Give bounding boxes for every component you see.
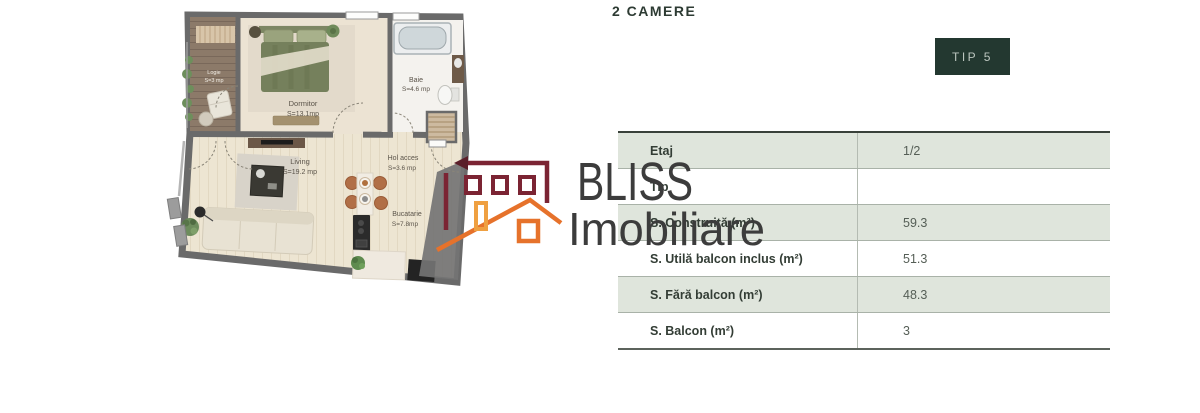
row-label: Tip xyxy=(618,169,858,204)
row-value xyxy=(858,169,1110,204)
table-row: S. Fără balcon (m²) 48.3 xyxy=(618,277,1110,313)
room-label-bucatarie: Bucatarie xyxy=(392,211,422,218)
table-row: Tip xyxy=(618,169,1110,205)
row-label: Etaj xyxy=(618,133,858,168)
room-label-logie: Logie xyxy=(207,70,220,76)
table-row: S. Balcon (m²) 3 xyxy=(618,313,1110,348)
row-label: S. Balcon (m²) xyxy=(618,313,858,348)
floor-plan: Logie S=3 mp Dormitor S=13.1mp Baie S=4.… xyxy=(163,0,473,310)
row-value: 48.3 xyxy=(858,277,1110,312)
table-row: S. Utilă balcon inclus (m²) 51.3 xyxy=(618,241,1110,277)
room-label-dormitor: Dormitor xyxy=(289,99,318,108)
row-value: 51.3 xyxy=(858,241,1110,276)
row-label: S. Fără balcon (m²) xyxy=(618,277,858,312)
bathroom-vanity xyxy=(452,55,464,83)
table-row: S. Construită (m²) 59.3 xyxy=(618,205,1110,241)
room-area-bucatarie: S=7.8mp xyxy=(392,221,419,228)
page-title: 2 CAMERE xyxy=(612,3,696,19)
room-label-living: Living xyxy=(290,157,310,166)
row-value: 3 xyxy=(858,313,1110,348)
tip-badge[interactable]: TIP 5 xyxy=(935,38,1010,75)
room-area-baie: S=4.6 mp xyxy=(402,86,430,93)
row-value: 1/2 xyxy=(858,133,1110,168)
entry-door-leaf xyxy=(429,140,446,147)
room-area-living: S=19.2 mp xyxy=(283,169,317,176)
room-label-baie: Baie xyxy=(409,77,423,84)
bathtub xyxy=(394,23,451,54)
room-area-dormitor: S=13.1mp xyxy=(287,111,319,118)
room-area-hol: S=3.6 mp xyxy=(388,165,416,172)
row-label: S. Utilă balcon inclus (m²) xyxy=(618,241,858,276)
row-value: 59.3 xyxy=(858,205,1110,240)
row-label: S. Construită (m²) xyxy=(618,205,858,240)
room-area-logie: S=3 mp xyxy=(204,78,223,84)
table-row: Etaj 1/2 xyxy=(618,133,1110,169)
tv xyxy=(261,140,293,145)
spec-table: Etaj 1/2 Tip S. Construită (m²) 59.3 S. … xyxy=(618,131,1110,350)
stairs xyxy=(427,112,456,142)
sofa xyxy=(202,207,314,255)
room-label-hol: Hol acces xyxy=(388,155,419,162)
